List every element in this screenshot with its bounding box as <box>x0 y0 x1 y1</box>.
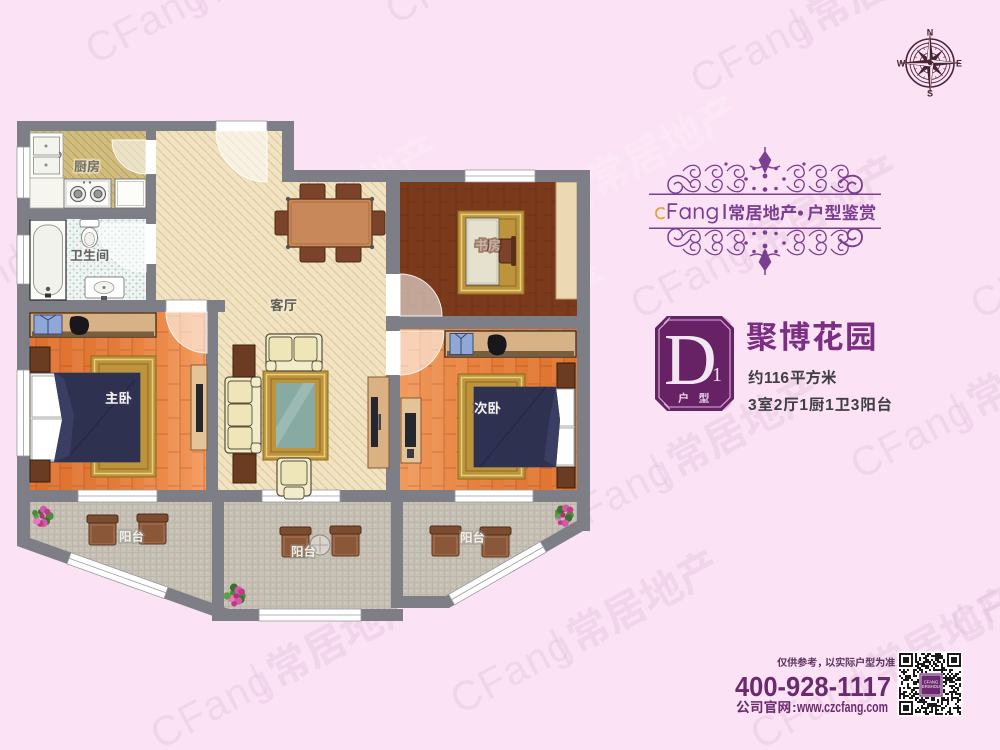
svg-text:400-928-1117: 400-928-1117 <box>735 671 891 702</box>
svg-text:2: 2 <box>774 397 783 414</box>
svg-text:3: 3 <box>748 397 757 414</box>
svg-text:116: 116 <box>764 370 789 387</box>
svg-text:1: 1 <box>825 397 834 414</box>
svg-text:D: D <box>664 319 717 400</box>
svg-text:www.czcfang.com: www.czcfang.com <box>796 700 888 716</box>
svg-text::: : <box>792 699 797 715</box>
svg-text:1: 1 <box>799 397 808 414</box>
svg-text:3: 3 <box>851 397 860 414</box>
svg-text:N: N <box>927 28 934 38</box>
svg-text:W: W <box>897 59 906 69</box>
svg-text:ERSHOU: ERSHOU <box>922 684 940 689</box>
svg-text:E: E <box>956 59 962 69</box>
svg-text:1: 1 <box>712 364 722 386</box>
svg-text:S: S <box>927 89 933 99</box>
